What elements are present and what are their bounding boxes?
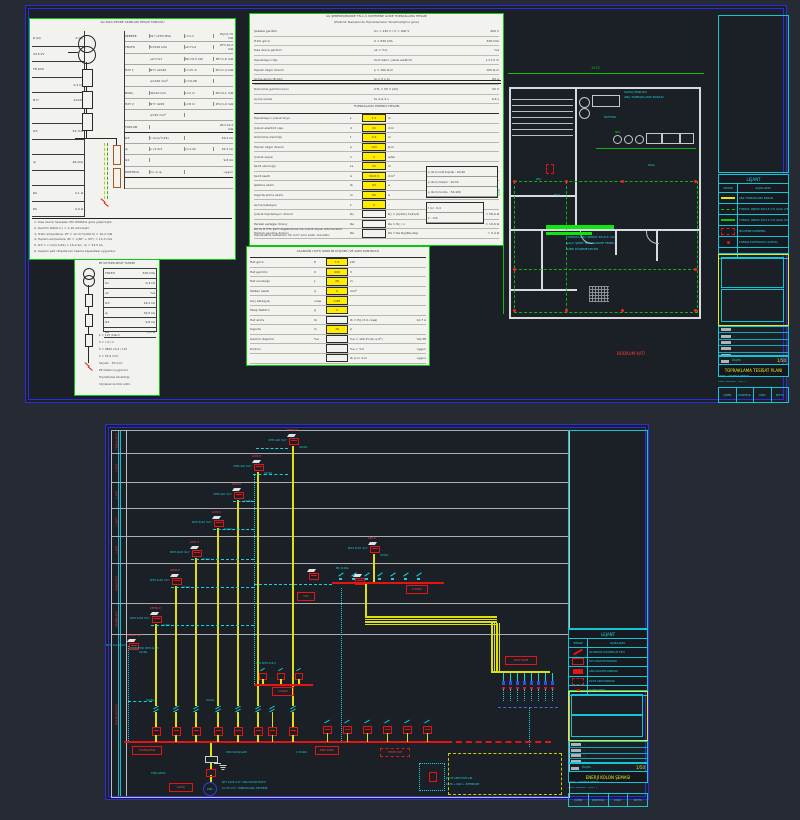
transformer-circle-bottom (78, 46, 96, 64)
floor-band: 2.KAT (111, 508, 568, 536)
stair-tread (512, 99, 573, 100)
feeder-breaker-group (383, 721, 392, 742)
board-name: HİDROFOR (127, 634, 141, 637)
earth-flash (103, 202, 108, 207)
stair-tread (512, 117, 573, 118)
floor-label: 4.KAT (113, 454, 120, 481)
scale-value: 1/50 (777, 359, 786, 364)
feeder-breaker-group (423, 721, 432, 742)
board-box-icon (172, 578, 182, 585)
grid-row: ipκ·√2·Ik3 κ=1,4232,5 kA (125, 144, 233, 155)
room-label: HOL (554, 193, 560, 197)
board-flag-icon (287, 434, 296, 437)
calc-row: Toprak özgül direnciρ 100 Ω.m (254, 143, 499, 153)
ground-branch (75, 138, 117, 139)
callout-symbol (429, 772, 437, 782)
board-box-icon (192, 550, 202, 557)
board-cable-label: NYM 4x10 mm² (170, 551, 190, 554)
signature-cell: ÇİZEN (719, 388, 737, 402)
weak-current-breaker (550, 673, 555, 703)
cable-bundle (365, 616, 497, 618)
board-name: ZEMİN P. (150, 607, 161, 610)
legend-row: ZAYIF AKIM PANOSU (569, 677, 647, 687)
ground-dot (254, 474, 255, 684)
legend-row: TOPRAK. ŞERİDİ 30x3,5 mm GALV. (DUVARDA) (719, 215, 788, 226)
weak-current-breaker (508, 673, 513, 703)
calc-row: Ib ≤ In ≤ Izuygun (250, 354, 426, 364)
board-cable-label: NYM 4x10 mm² (192, 521, 212, 524)
cable-annotation: B6 3x16A (336, 567, 349, 570)
value-table: TRAFO630 kVA Un0,4 kV uk%4 Ik316,2 kA ip… (103, 268, 157, 332)
cable-annotation: C 3x40A (296, 751, 307, 754)
calc-row: Hat uzunluğuL 28 m (250, 277, 426, 287)
revision-cell (571, 754, 581, 757)
dimension-line-top (508, 73, 704, 74)
breaker-symbol (85, 314, 93, 327)
board-name: ASMA P. (170, 569, 180, 572)
stamp-area (568, 691, 648, 741)
cable-annotation: HİDROFOR NYM 4x2,5 (130, 647, 159, 650)
room-label: WC (536, 177, 541, 181)
riser-line (175, 586, 177, 706)
annotation-line: ANA TOPRAKLAMA BARASI (624, 95, 664, 99)
distribution-board: TERAS P. NYM 4x6 mm² 3x25A (288, 434, 300, 448)
ground-line-h (514, 269, 696, 270)
cable-annotation: Cu 25 mm² TOPRAKLAMA İLETKENİ (222, 787, 267, 790)
board-box-icon (234, 492, 244, 499)
dimension-label-width: 1172 (591, 66, 600, 70)
project-info: PROJE : MESKEN BİNASIADA / PARSEL : 114 … (568, 781, 646, 792)
legend: LEJANT SİMGE AÇIKLAMA OTOMATİK SİGORTA (… (568, 629, 648, 691)
legend-symbol (569, 667, 588, 676)
formula-line: PE iletkeni uygundur. (99, 369, 157, 376)
info-row: Kısa devre gerilimiuk = %4%4 (254, 46, 499, 56)
constants-box: t (s) : 0,4k : 115 (426, 202, 484, 224)
panel-title: AG KISA DEVRE AKIMLARI HESAP TABLOSU (30, 20, 235, 24)
signature-cell: ÇİZEN (569, 794, 589, 806)
table-row: TR 630 (32, 62, 84, 78)
riser-line (155, 624, 157, 706)
ground-dash (256, 448, 288, 449)
grid-row: BARA40x10 mm L=2 mZb=0,1 mΩ (125, 87, 233, 98)
board-flag-icon (170, 574, 179, 577)
signature-cell: KONTROL (589, 794, 609, 806)
earth-flash (87, 366, 92, 371)
earth-electrode-dot (513, 268, 516, 271)
distribution-board: KAT2 P. NYM 4x10 mm² 3x32A (213, 516, 225, 530)
wall (509, 87, 511, 319)
table-row: uk%4 (104, 289, 156, 299)
feeder-breaker-group (403, 721, 412, 742)
legend-symbol (719, 215, 738, 225)
detail-callout-box (419, 763, 445, 791)
panel-label: UPS (297, 592, 315, 601)
notes: RA·Ia ≤ UTL şartı sağlanamaz ise çubuk s… (254, 228, 499, 240)
riser-line (210, 762, 212, 769)
distribution-board: KAT4 P. NYM 4x6 mm² 3x25A (253, 460, 265, 474)
cable-annotation: NYY 4x16 mm² ANA KOLON HATTI (222, 781, 266, 784)
note-line: Topraklama iletkenleri 50 mm² som bakır … (254, 234, 499, 240)
calc-row: Gömülme derinliğit 0,8 m (254, 133, 499, 143)
signature-cell: PAFTA (772, 388, 789, 402)
revision-cell (571, 749, 581, 752)
board-flag-icon (368, 542, 377, 545)
breaker-symbol (82, 113, 93, 131)
panel-title: PE İLETKEN KESİT TAHKİKİ (75, 261, 159, 265)
feeder-line (68, 52, 78, 53)
info-line: ADA / PARSEL : 114 / 7 (568, 787, 646, 793)
scale-value: 1/50 (636, 766, 645, 771)
legend-columns: SİMGE AÇIKLAMA (569, 639, 647, 648)
calc-table: Hat gücüP 7,5 kW Hat gerilimiU 400 V Hat… (250, 257, 426, 364)
distribution-board: KAT3 P. NYM 4x6 mm² 3x25A (233, 488, 245, 502)
divider (252, 80, 501, 81)
sheet-riser-diagram: TERAS KATI 4.KAT 3.KAT 2.KAT 1.KAT ASMA … (105, 424, 649, 800)
earth-electrode-dot (621, 309, 624, 312)
stamp-box (721, 257, 784, 288)
stamp-box (721, 289, 784, 322)
board-flag-icon (212, 516, 221, 519)
scale-label: ÖLÇEK (732, 360, 741, 363)
formulas: k = 115 (bakır)S = I·√t / kS = 9800·√0,4… (99, 334, 157, 390)
stair-tread (512, 105, 573, 106)
calc-row: Güç katsayısıcosφ 0,85 (250, 296, 426, 306)
annotation-line: SAYAÇ PANOSU (624, 90, 647, 94)
main-switch-symbol (205, 756, 218, 763)
sheet-grounding-plan: AG KISA DEVRE AKIMLARI HESAP TABLOSU R (… (25, 5, 787, 403)
legend-row: KAT DAĞITIM PANOSU (569, 658, 647, 668)
ground-conductor-green (107, 143, 108, 199)
distribution-board: KAT1 P. NYM 4x10 mm² 3x32A (191, 546, 203, 560)
legend-text: TOPRAK. ŞERİDİ 30x3,5 mm GALV. (TEMELDE) (738, 208, 788, 211)
floor-divider (111, 430, 568, 431)
wall (509, 87, 701, 89)
legend-symbol (569, 658, 588, 667)
dimension-line-left (503, 89, 504, 314)
cell (721, 360, 729, 363)
room-label: NİŞ (615, 130, 620, 134)
panel-label: ZAYIF AKIM (505, 656, 537, 665)
meter-breaker-group (192, 706, 201, 742)
formula-line: ölçülerek kontrol edilir. (99, 383, 157, 390)
table-row: Ik316,2 kA (104, 298, 156, 308)
board-flag-icon (252, 460, 261, 463)
fixture-circle (579, 108, 590, 119)
legend-symbol (569, 677, 588, 686)
board-fuse-label: 3x32A (202, 558, 210, 561)
soil-resistivity-box: ρ (Ω.m) killi toprak : 20-60ρ (Ω.m) balç… (426, 166, 498, 198)
fixture-circle (635, 135, 644, 144)
stamp-area (718, 254, 789, 326)
floor-band: 1.KAT (111, 536, 568, 563)
breaker-symbol (82, 69, 93, 87)
feeder-breaker-group (343, 721, 352, 742)
breaker-tick (350, 572, 357, 582)
sub-row: ρ (Ω.m) balçık : 10-50 (427, 177, 497, 187)
table-row: ip32,5 kA (104, 308, 156, 318)
board-name: KAT2 P. (212, 511, 221, 514)
grid-row: HAT 1NYY 4x240 L=15 mZh=1,4 mΩ (125, 65, 233, 76)
fixture-circle (624, 135, 633, 144)
fixture-rect (680, 133, 694, 144)
calc-grid: ŞEBEKESk''=250 MVA c=1,1Zq=0,70 mΩ TRAFO… (124, 31, 233, 189)
revision-text: - (734, 341, 735, 344)
cable-bundle (365, 619, 497, 621)
cable-bundle (496, 623, 498, 673)
revision-table: - - - - (568, 741, 648, 763)
cable-bundle (491, 623, 493, 673)
board-cable-label: NYM 4x6 mm² (269, 439, 287, 442)
grid-row: HAT 2NYY 4x95 L=8 mZh=1,9 mΩ (125, 99, 233, 110)
formula-line: S = 9800·√0,4 / 115 (99, 348, 157, 355)
floor-label: 2.KAT (113, 509, 120, 535)
fixture-circle (613, 135, 622, 144)
weak-current-zone (448, 753, 562, 795)
stair-tread (512, 123, 573, 124)
board-fuse-label: 3x16A (139, 651, 147, 654)
grid-row: ŞEBEKESk''=250 MVA c=1,1Zq=0,70 mΩ (125, 31, 233, 42)
main-busbar-dashed (446, 741, 551, 743)
floor-divider (111, 603, 568, 604)
board-flag-icon (127, 639, 136, 642)
cable-annotation: CAT6 + RG6 + İNTERKOM (446, 783, 479, 786)
cable-annotation: 3x32A (206, 699, 214, 702)
weak-current-breaker (515, 673, 520, 703)
breaker-tick (363, 572, 370, 582)
floor-divider (111, 508, 568, 509)
project-info: PROJE : MESKEN BİNASIADA / PARSEL : 114 … (718, 375, 787, 387)
ground-dash (254, 584, 332, 585)
board-box-icon (309, 573, 319, 580)
info-row: Topraklayıcı tipiSom bakır çubuk elektro… (254, 56, 499, 66)
board-flag-icon (190, 546, 199, 549)
revision-cell (721, 335, 731, 338)
table-row (32, 171, 84, 187)
distribution-board: HİDROFOR NYM 4x2,5 mm² 3x16A (128, 639, 140, 653)
annotation-line: İÇİNE DÖŞENECEKTİR (566, 247, 598, 251)
earth-electrode-dot (565, 309, 568, 312)
meter-breaker-group (254, 706, 263, 742)
panel-label: K.PANO (272, 687, 294, 696)
info-row: Açma süresita ≤ 0,4 s0,4 s (254, 95, 499, 105)
legend-col-symbol: SİMGE (569, 639, 588, 647)
board-box-icon (370, 546, 380, 553)
ground-dot (128, 646, 129, 741)
legend-text: ANA TOPRAKLAMA BARASI (738, 197, 788, 200)
sub-busbar (254, 684, 313, 686)
scale-label: ÖLÇEK (582, 767, 591, 770)
calc-row: Hat gücüP 7,5 kW (250, 258, 426, 268)
board-fuse-label: 3x25A (264, 472, 272, 475)
note-line: 6- Seçilen şalt cihazlarının kesme kapas… (34, 250, 232, 256)
grid-row: TOPLAM Zk=14,3 mΩ (125, 121, 233, 132)
board-flag-icon (307, 569, 316, 572)
annotation-line: GALV. ŞERİT BETONARME TEMEL (566, 241, 615, 245)
legend-rows: OTOMATİK SİGORTA (B TİPİ) KAT DAĞITIM PA… (569, 648, 647, 696)
grid-row: KONTROLIcu ≥ ip uygun (125, 167, 233, 178)
weak-current-breaker (501, 673, 506, 703)
info-row: Trafo gücüS = 630 kVA630 kVA (254, 37, 499, 47)
table-row (32, 109, 84, 125)
calc-row: Hat gerilimiU 400 V (250, 268, 426, 278)
panel-short-circuit: AG KISA DEVRE AKIMLARI HESAP TABLOSU R (… (29, 18, 236, 260)
grid-row (125, 178, 233, 189)
board-box-icon (214, 520, 224, 527)
distribution-board: ASMA P. NYM 4x10 mm² 3x32A (171, 574, 183, 588)
board-name: UPS P. (368, 537, 376, 540)
room-label: MUTFAK (604, 115, 616, 119)
riser-line (210, 743, 212, 756)
plan-caption: BODRUM KATI (571, 352, 691, 357)
earth-connector (214, 763, 221, 764)
extra-rows: Dokunma gerilimi sınırıUTL = 50 V (AC)50… (254, 85, 499, 104)
riser-line (195, 558, 197, 706)
earth-electrode-dot (513, 180, 516, 183)
breaker-symbol (85, 294, 93, 307)
feeder-breaker-group (323, 721, 332, 742)
breaker-tick (337, 572, 344, 582)
signature-cell: KONTROL (737, 388, 755, 402)
signature-cell: ONAY (609, 794, 629, 806)
legend-text: MUAYENE KLEMENSİ (738, 230, 788, 233)
stair-tread (512, 135, 573, 136)
legend-text: TOPRAK ELEKTRODU (ÇUBUK) (738, 241, 788, 244)
riser-line (292, 446, 294, 706)
stamp-box (571, 715, 643, 737)
ground-bar (546, 225, 614, 229)
notes: 1- Kısa devre hesapları IEC 60909'a göre… (34, 221, 232, 257)
panel-label: Z.PANO (406, 585, 428, 594)
breaker-symbol (82, 91, 93, 109)
sub-row: ρ (Ω.m) kumlu : 50-100 (427, 187, 497, 197)
board-fuse-label: 3x40A (162, 624, 170, 627)
legend-col-desc: AÇIKLAMA (588, 639, 647, 647)
formula-line: Seçilen : 50 mm² (99, 362, 157, 369)
fixture-rect (662, 133, 680, 144)
riser-line (373, 554, 375, 582)
panel-label: YEDEK HAT (380, 748, 410, 757)
calc-row: Hat akımıIb Ib = P/(√3·U·cosφ)12,7 A (250, 316, 426, 326)
wall (699, 87, 701, 319)
signature-strip: ÇİZENKONTROLONAYPAFTA (568, 793, 648, 807)
formula-line: Topraklama sürekliliği (99, 376, 157, 383)
table-row (32, 140, 84, 156)
legend-row: TOPRAK ELEKTRODU (ÇUBUK) (719, 237, 788, 248)
breaker-tick (389, 572, 396, 582)
formula-line: S = I·√t / k (99, 341, 157, 348)
cable-annotation: 3x25A (146, 699, 154, 702)
floor-band: 4.KAT (111, 453, 568, 482)
board-fuse-label: 3x32A (380, 554, 388, 557)
legend-title: LEJANT (719, 175, 788, 184)
distribution-board: ZEMİN P. NYM 4x16 mm² 3x40A (151, 612, 163, 626)
ground-line-kitchen (596, 148, 696, 149)
floor-divider (111, 563, 568, 564)
fixture-rect (592, 95, 620, 107)
signature-cell: ONAY (754, 388, 772, 402)
board-flag-icon (232, 488, 241, 491)
hatch-area (589, 286, 609, 302)
cable-bundle (499, 623, 501, 673)
board-fuse-label: 3x25A (244, 500, 252, 503)
grid-row: TRAFOS=630 kVA uk=%4ZT=10,2 mΩ (125, 42, 233, 53)
breaker-tick (402, 572, 409, 582)
sub-breaker-group (259, 669, 267, 684)
titleblock-empty-box (568, 430, 648, 629)
calc-row: Gerilim düşümü%e %e = 100·P·L/(k·q·U²)%0… (250, 335, 426, 345)
legend-col-symbol: SİMGE (719, 184, 738, 192)
breaker-symbol (85, 334, 93, 347)
legend-text: OTOMATİK SİGORTA (B TİPİ) (588, 651, 647, 654)
meter-breaker-group (152, 706, 161, 742)
stamp-box (571, 694, 643, 715)
board-box-icon (289, 438, 299, 445)
meter-breaker-group (234, 706, 243, 742)
revision-text: - (584, 754, 585, 757)
legend-symbol (719, 226, 738, 236)
calc-row: Çubuk sayısın 3 adet (254, 152, 499, 162)
floor-label: 3.KAT (113, 483, 120, 507)
board-cable-label: NYM 4x16 mm² (130, 617, 150, 620)
legend-symbol (719, 193, 738, 203)
panel-header: AG ŞEBEKELERİNDE TN-C-S SİSTEMİNE GÖRE T… (252, 15, 501, 27)
grid-row: ukr=%1 Pkr=6,5 kWRT=1,6 mΩ (125, 54, 233, 65)
fixture-circle (579, 97, 590, 108)
board-fuse-label: 3x32A (224, 528, 232, 531)
revision-text: - (584, 749, 585, 752)
section-title: TOPRAKLAMA DİRENCİ HESABI (250, 104, 503, 108)
panel-grounding-calc: AG ŞEBEKELERİNDE TN-C-S SİSTEMİNE GÖRE T… (249, 13, 504, 246)
calc-row: Kontrol %e < %3uygun (250, 344, 426, 354)
grid-row: Ik3c·Un/(√3·Zk) 16,2 kA (125, 133, 233, 144)
board-name: KAT4 P. (252, 455, 261, 458)
legend-row: ANA DAĞITIM PANOSU (569, 667, 647, 677)
calc-row: Topraklayıcı çubuk boyuL 1,5 m (254, 114, 499, 124)
weak-current-breaker (522, 673, 527, 703)
earth-electrode-dot (513, 309, 516, 312)
stair-tread (512, 129, 573, 130)
earth-electrode-dot (621, 180, 624, 183)
revision-text: - (734, 335, 735, 338)
revision-text: - (584, 743, 585, 746)
sub-row: ρ (Ω.m) killi toprak : 20-60 (427, 167, 497, 177)
info-row: Şebeke gerilimiUo = 230 V / U = 400 V400… (254, 27, 499, 37)
floor-label: ZEMİN KAT (113, 604, 120, 633)
floor-label: TERAS KATI (113, 431, 120, 452)
floor-divider (111, 482, 568, 483)
ground-line-v (566, 181, 567, 311)
sub-breaker-group (277, 669, 285, 684)
cable-annotation: UPS NYM 3x2,5 (256, 662, 276, 665)
board-cable-label: NYM 4x10 mm² (348, 547, 368, 550)
floor-label: 1.KAT (113, 537, 120, 562)
earth-electrode-dot (694, 180, 697, 183)
weak-current-breaker (543, 673, 548, 703)
earth-electrode-dot (694, 268, 697, 271)
revision-text: - (734, 347, 735, 350)
board-cable-label: NYM 4x6 mm² (214, 493, 232, 496)
board-box-icon (152, 616, 162, 623)
fixture-rect (646, 133, 662, 144)
board-flag-icon (150, 612, 159, 615)
distribution-board: UPS P. NYM 4x10 mm² 3x32A (369, 542, 381, 556)
cable-annotation: ZAYIF AKIM HATLARI (446, 777, 472, 780)
grid-row: q=240 mm² x'=0,08 (125, 76, 233, 87)
cable-bundle (365, 624, 497, 626)
calc-row: Çubuk elektrot çapıd 20 mm (254, 124, 499, 134)
legend-text: ANA DAĞITIM PANOSU (588, 670, 647, 673)
meter-breaker-group (289, 706, 298, 742)
